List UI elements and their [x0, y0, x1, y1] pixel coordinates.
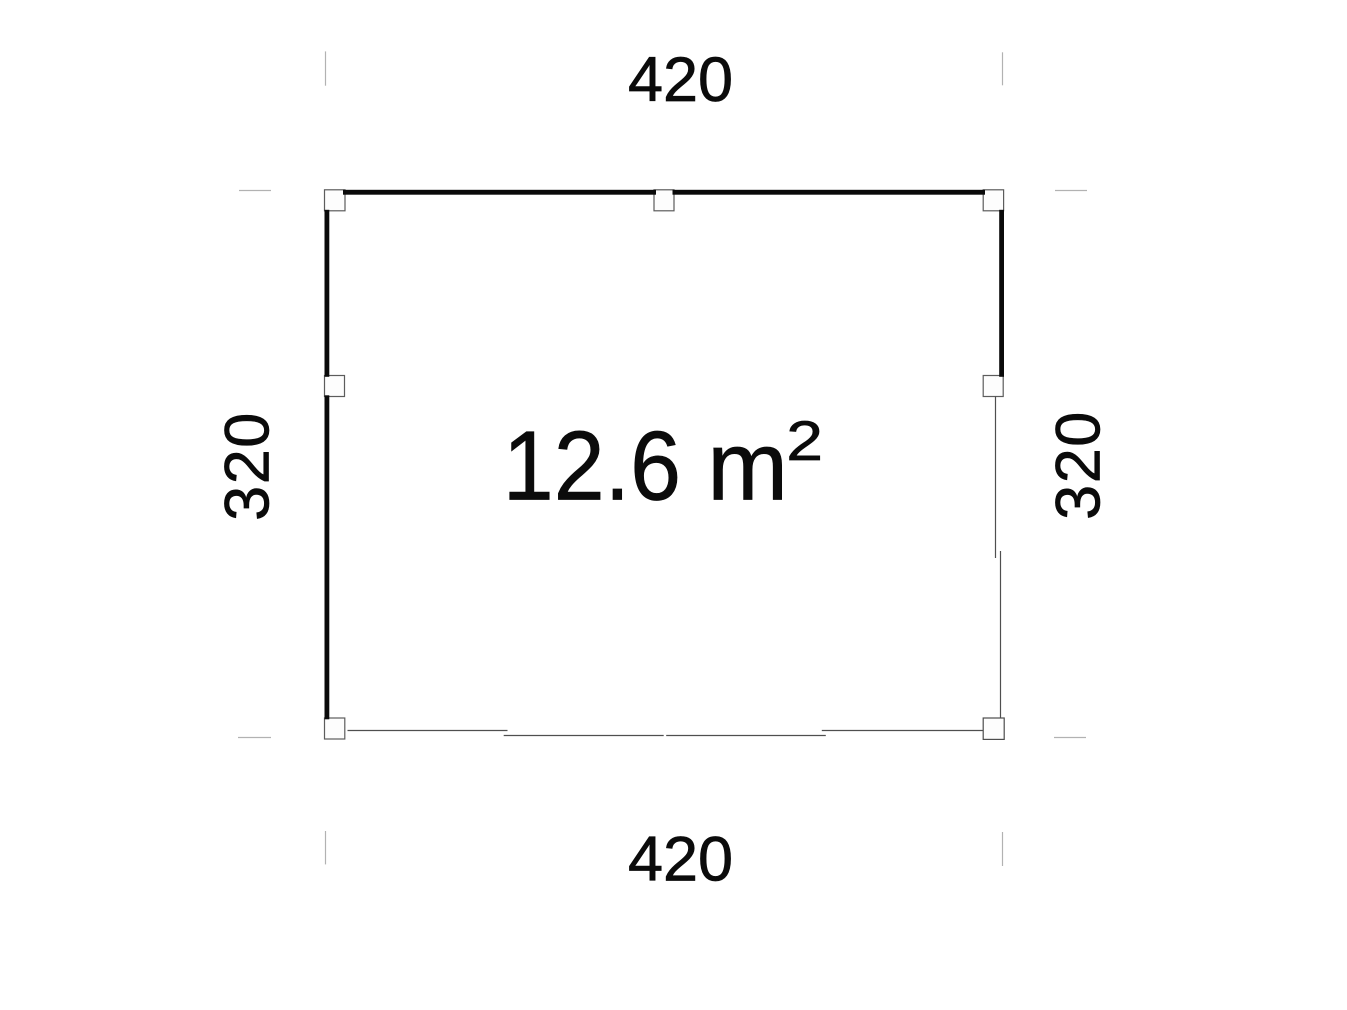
- svg-text:m: m: [707, 412, 788, 521]
- svg-text:420: 420: [628, 825, 733, 895]
- svg-text:12.6: 12.6: [503, 411, 681, 521]
- svg-text:2: 2: [786, 410, 823, 472]
- svg-text:320: 320: [1043, 410, 1113, 520]
- svg-text:320: 320: [213, 411, 283, 521]
- svg-text:420: 420: [628, 45, 733, 115]
